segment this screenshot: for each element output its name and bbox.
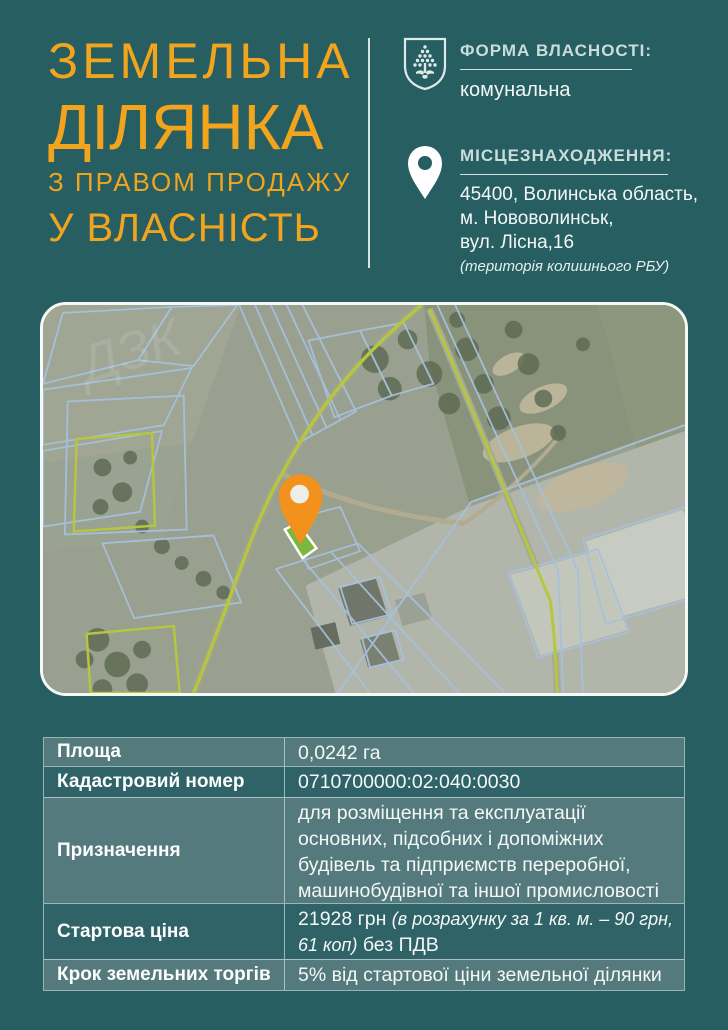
table-row: Площа0,0242 га [44,738,684,766]
location-heading: МІСЦЕЗНАХОДЖЕННЯ: [460,141,722,166]
ownership-rule [460,69,632,70]
title-line-2: ДІЛЯНКА [48,92,368,162]
row-label: Кадастровий номер [44,767,284,797]
table-row: Стартова ціна21928 грн (в розрахунку за … [44,903,684,959]
title-line-3: З ПРАВОМ ПРОДАЖУ [48,162,368,202]
address-line: м. Нововолинськ, [460,207,722,231]
coat-of-arms-icon [402,36,448,97]
ownership-heading: ФОРМА ВЛАСНОСТІ: [460,36,722,61]
table-row: Кадастровий номер0710700000:02:040:0030 [44,766,684,797]
row-value: 21928 грн (в розрахунку за 1 кв. м. – 90… [284,904,684,959]
page-title: ЗЕМЕЛЬНА ДІЛЯНКА З ПРАВОМ ПРОДАЖУ У ВЛАС… [48,30,368,254]
location-note: (територія колишнього РБУ) [460,256,722,277]
address-line: 45400, Волинська область, [460,183,722,207]
title-line-4: У ВЛАСНІСТЬ [48,202,368,254]
table-row: Призначеннядля розміщення та експлуатаці… [44,797,684,903]
row-label: Призначення [44,798,284,903]
ownership-block: ФОРМА ВЛАСНОСТІ: комунальна [402,36,722,102]
row-label: Крок земельних торгів [44,960,284,990]
details-table: Площа0,0242 гаКадастровий номер071070000… [43,737,685,991]
location-address: 45400, Волинська область,м. Нововолинськ… [460,183,722,255]
row-value: для розміщення та експлуатації основних,… [284,798,684,903]
ownership-value: комунальна [460,79,722,102]
address-line: вул. Лісна,16 [460,231,722,255]
row-label: Площа [44,738,284,766]
flyer-page: ЗЕМЕЛЬНА ДІЛЯНКА З ПРАВОМ ПРОДАЖУ У ВЛАС… [0,0,728,1030]
row-label: Стартова ціна [44,904,284,959]
row-value: 0710700000:02:040:0030 [284,767,684,797]
location-block: МІСЦЕЗНАХОДЖЕННЯ: 45400, Волинська облас… [402,141,722,277]
location-pin-icon [405,145,445,206]
table-row: Крок земельних торгів5% від стартової ці… [44,959,684,990]
row-value: 5% від стартової ціни земельної ділянки [284,960,684,990]
row-value: 0,0242 га [284,738,684,766]
location-rule [460,174,668,175]
satellite-map: ДЗК [40,302,688,696]
title-line-1: ЗЕМЕЛЬНА [48,30,368,92]
vertical-divider [368,38,370,268]
